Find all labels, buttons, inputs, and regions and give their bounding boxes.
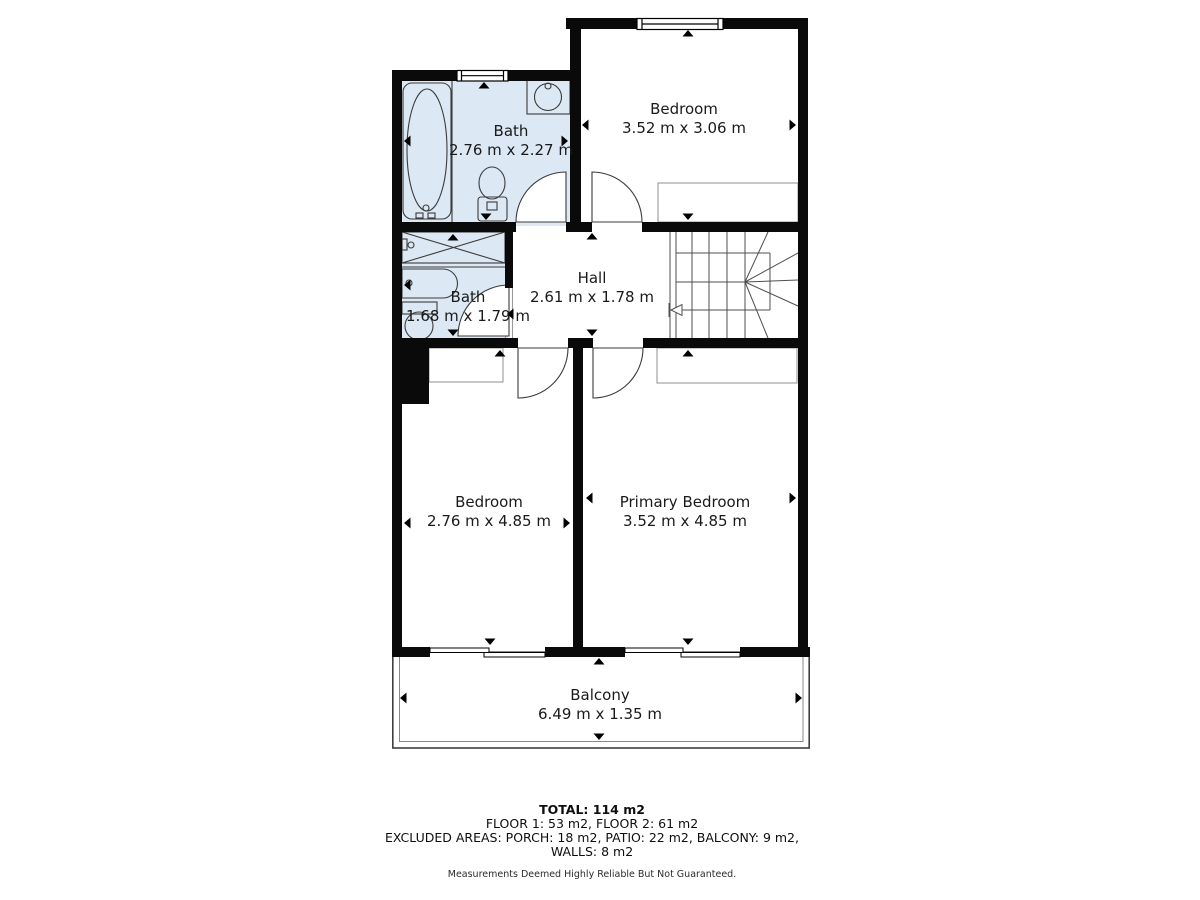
room-name: Bath [449,122,573,141]
room-label-bedroom-upper: Bedroom 3.52 m x 3.06 m [622,100,746,138]
room-dimensions: 1.68 m x 1.79 m [406,307,530,326]
room-name: Bedroom [622,100,746,119]
door-swing-icon [518,348,568,398]
summary-walls: WALLS: 8 m2 [0,845,1184,859]
room-name: Primary Bedroom [620,493,751,512]
room-dimensions: 2.61 m x 1.78 m [530,288,654,307]
sliding-door-icon [430,648,545,657]
room-dimensions: 3.52 m x 4.85 m [620,512,751,531]
room-dimensions: 3.52 m x 3.06 m [622,119,746,138]
room-label-bedroom-lower: Bedroom 2.76 m x 4.85 m [427,493,551,531]
floorplan-drawing [0,0,1200,900]
closet [658,183,798,222]
room-label-primary-bedroom: Primary Bedroom 3.52 m x 4.85 m [620,493,751,531]
window-icon [637,19,723,30]
door-swing-icon [593,348,643,398]
closet [429,348,503,382]
summary-total: TOTAL: 114 m2 [0,803,1184,817]
room-dimensions: 6.49 m x 1.35 m [538,705,662,724]
room-name: Bedroom [427,493,551,512]
room-name: Balcony [538,686,662,705]
room-label-hall: Hall 2.61 m x 1.78 m [530,269,654,307]
room-label-bath-lower: Bath 1.68 m x 1.79 m [406,288,530,326]
summary-floors: FLOOR 1: 53 m2, FLOOR 2: 61 m2 [0,817,1184,831]
room-name: Bath [406,288,530,307]
room-label-balcony: Balcony 6.49 m x 1.35 m [538,686,662,724]
closet [657,348,797,383]
window-icon [457,71,508,82]
floorplan-canvas: Bath 2.76 m x 2.27 m Bedroom 3.52 m x 3.… [0,0,1200,900]
room-name: Hall [530,269,654,288]
door-swing-icon [592,172,642,222]
summary-excluded-areas: EXCLUDED AREAS: PORCH: 18 m2, PATIO: 22 … [0,831,1184,845]
disclaimer: Measurements Deemed Highly Reliable But … [0,868,1184,882]
room-label-bath-upper: Bath 2.76 m x 2.27 m [449,122,573,160]
structural-block [402,338,429,404]
room-dimensions: 2.76 m x 2.27 m [449,141,573,160]
sliding-door-icon [625,648,740,657]
room-dimensions: 2.76 m x 4.85 m [427,512,551,531]
staircase-icon [669,232,798,338]
